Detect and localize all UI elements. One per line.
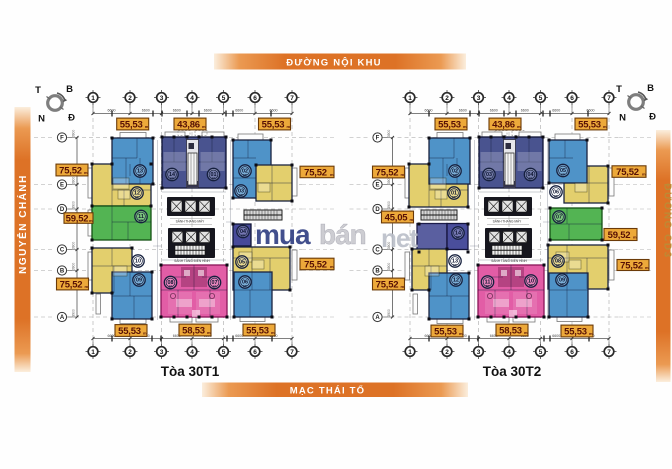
svg-text:59,52: 59,52: [66, 213, 89, 224]
svg-text:2: 2: [128, 95, 132, 102]
svg-text:SP: SP: [486, 284, 490, 288]
svg-text:bán: bán: [319, 219, 366, 250]
svg-text:NGUYỄN CHÁNH: NGUYỄN CHÁNH: [16, 174, 29, 274]
svg-text:SP: SP: [139, 219, 143, 223]
svg-text:3: 3: [477, 95, 481, 102]
svg-text:SẢNH TẦNG ĐIỂN HÌNH: SẢNH TẦNG ĐIỂN HÌNH: [491, 258, 527, 263]
svg-text:3900: 3900: [387, 263, 391, 271]
svg-text:75,52: 75,52: [59, 165, 82, 176]
svg-text:3: 3: [160, 95, 164, 102]
svg-text:E: E: [375, 183, 379, 189]
svg-text:m: m: [401, 284, 405, 289]
svg-text:m: m: [271, 330, 275, 335]
svg-text:1: 1: [91, 349, 95, 356]
svg-text:SẢNH TẦNG ĐIỂN HÌNH: SẢNH TẦNG ĐIỂN HÌNH: [174, 258, 210, 263]
svg-text:59,52: 59,52: [608, 230, 631, 241]
svg-text:SP: SP: [557, 219, 561, 223]
svg-text:3900: 3900: [72, 263, 76, 271]
svg-text:B: B: [60, 269, 65, 275]
svg-text:C: C: [60, 248, 65, 254]
svg-text:m: m: [89, 218, 93, 223]
svg-text:75,52: 75,52: [376, 167, 399, 178]
svg-text:ĐƯỜNG CD3: ĐƯỜNG CD3: [662, 183, 672, 258]
svg-text:m: m: [645, 265, 649, 270]
svg-text:Đ: Đ: [68, 113, 75, 124]
svg-text:3900: 3900: [387, 130, 391, 138]
svg-text:1: 1: [408, 95, 412, 102]
svg-text:m: m: [463, 124, 467, 129]
svg-text:E: E: [60, 183, 64, 189]
svg-text:2: 2: [128, 349, 132, 356]
svg-text:6600: 6600: [552, 109, 560, 113]
svg-text:SP: SP: [213, 285, 217, 289]
svg-text:75,52: 75,52: [304, 259, 327, 270]
svg-text:4: 4: [190, 95, 194, 102]
svg-text:mua: mua: [255, 219, 311, 250]
svg-text:SP: SP: [136, 263, 140, 267]
svg-text:75,52: 75,52: [60, 279, 83, 290]
svg-text:m: m: [642, 172, 646, 177]
svg-text:5: 5: [539, 349, 543, 356]
svg-text:43,86: 43,86: [492, 119, 515, 130]
svg-text:3900: 3900: [72, 242, 76, 250]
svg-text:m: m: [517, 124, 521, 129]
svg-text:75,52: 75,52: [620, 260, 643, 271]
svg-text:m: m: [202, 124, 206, 129]
svg-text:T: T: [616, 84, 622, 95]
svg-text:6: 6: [570, 95, 574, 102]
svg-text:4: 4: [190, 349, 194, 356]
svg-text:ĐƯỜNG NỘI KHU: ĐƯỜNG NỘI KHU: [286, 57, 381, 69]
svg-text:3: 3: [160, 349, 164, 356]
svg-text:5: 5: [222, 349, 226, 356]
svg-text:SP: SP: [243, 173, 247, 177]
svg-text:C: C: [375, 248, 380, 254]
svg-text:m: m: [84, 170, 88, 175]
svg-text:7: 7: [290, 349, 294, 356]
svg-text:6600: 6600: [490, 109, 498, 113]
svg-text:3: 3: [477, 349, 481, 356]
svg-text:6: 6: [253, 95, 257, 102]
svg-text:m: m: [145, 124, 149, 129]
svg-text:T: T: [35, 85, 41, 96]
svg-text:SP: SP: [453, 173, 457, 177]
svg-text:Tòa 30T1: Tòa 30T1: [161, 364, 220, 379]
svg-text:5: 5: [539, 95, 543, 102]
svg-text:m: m: [330, 264, 334, 269]
svg-text:SP: SP: [240, 264, 244, 268]
svg-text:SP: SP: [138, 173, 142, 177]
svg-text:1: 1: [408, 349, 412, 356]
svg-text:2: 2: [445, 95, 449, 102]
svg-text:net: net: [381, 223, 418, 253]
svg-text:m: m: [287, 124, 291, 129]
svg-text:MẠC THÁI TỔ: MẠC THÁI TỔ: [290, 385, 365, 397]
svg-text:SẢNH THANG MÁY: SẢNH THANG MÁY: [493, 219, 523, 224]
svg-text:4: 4: [507, 349, 511, 356]
svg-text:3900: 3900: [72, 177, 76, 185]
svg-text:1: 1: [91, 95, 95, 102]
svg-text:55,53: 55,53: [434, 326, 457, 337]
svg-text:SP: SP: [560, 282, 564, 286]
svg-text:m: m: [85, 284, 89, 289]
svg-text:75,52: 75,52: [616, 167, 639, 178]
svg-text:6600: 6600: [235, 109, 243, 113]
svg-text:m: m: [207, 330, 211, 335]
svg-text:SP: SP: [554, 194, 558, 198]
svg-text:7: 7: [290, 95, 294, 102]
svg-text:SP: SP: [169, 285, 173, 289]
svg-text:N: N: [619, 113, 626, 124]
svg-text:SP: SP: [561, 173, 565, 177]
svg-text:58,53: 58,53: [182, 325, 205, 336]
svg-text:6600: 6600: [235, 334, 243, 338]
svg-text:3900: 3900: [72, 130, 76, 138]
svg-text:SP: SP: [529, 283, 533, 287]
svg-text:75,52: 75,52: [304, 167, 327, 178]
svg-text:m: m: [330, 172, 334, 177]
svg-text:m: m: [524, 330, 528, 335]
svg-text:6600: 6600: [459, 109, 467, 113]
svg-text:SP: SP: [212, 177, 216, 181]
svg-text:m: m: [143, 331, 147, 336]
svg-text:m: m: [589, 331, 593, 336]
svg-text:2: 2: [445, 349, 449, 356]
svg-text:6600: 6600: [552, 334, 560, 338]
svg-text:58,53: 58,53: [499, 325, 522, 336]
svg-text:SP: SP: [241, 234, 245, 238]
svg-text:A: A: [60, 315, 65, 321]
svg-text:SP: SP: [556, 263, 560, 267]
svg-text:3900: 3900: [387, 309, 391, 317]
svg-text:Tòa 30T2: Tòa 30T2: [483, 364, 542, 379]
svg-text:m: m: [633, 235, 637, 240]
svg-text:SẢNH THANG MÁY: SẢNH THANG MÁY: [176, 219, 206, 224]
svg-text:55,53: 55,53: [120, 119, 143, 130]
svg-text:F: F: [376, 136, 380, 142]
svg-text:SP: SP: [456, 235, 460, 239]
svg-text:SP: SP: [487, 177, 491, 181]
svg-text:55,53: 55,53: [262, 119, 285, 130]
svg-text:75,52: 75,52: [376, 279, 399, 290]
svg-text:Đ: Đ: [649, 112, 656, 123]
svg-text:B: B: [647, 83, 654, 94]
svg-text:SP: SP: [239, 193, 243, 197]
svg-text:4: 4: [507, 95, 511, 102]
svg-text:5: 5: [222, 95, 226, 102]
svg-text:SP: SP: [135, 195, 139, 199]
svg-text:SP: SP: [170, 177, 174, 181]
svg-text:3900: 3900: [72, 201, 76, 209]
svg-text:7: 7: [607, 349, 611, 356]
svg-text:SP: SP: [137, 282, 141, 286]
svg-text:43,86: 43,86: [177, 119, 200, 130]
svg-text:m: m: [603, 124, 607, 129]
svg-text:SP: SP: [453, 263, 457, 267]
svg-text:6: 6: [253, 349, 257, 356]
svg-text:D: D: [375, 207, 380, 213]
svg-text:3900: 3900: [72, 309, 76, 317]
svg-text:SP: SP: [454, 282, 458, 286]
svg-text:55,53: 55,53: [564, 326, 587, 337]
svg-text:N: N: [38, 114, 45, 125]
svg-text:SP: SP: [452, 195, 456, 199]
svg-text:m: m: [410, 217, 414, 222]
svg-text:B: B: [375, 269, 380, 275]
svg-text:55,53: 55,53: [246, 325, 269, 336]
svg-text:55,53: 55,53: [118, 326, 141, 337]
svg-text:m: m: [401, 172, 405, 177]
svg-text:A: A: [375, 315, 380, 321]
svg-text:3900: 3900: [387, 201, 391, 209]
svg-text:SP: SP: [243, 284, 247, 288]
svg-text:7: 7: [607, 95, 611, 102]
svg-text:6600: 6600: [142, 109, 150, 113]
svg-text:6600: 6600: [204, 109, 212, 113]
svg-text:6600: 6600: [521, 109, 529, 113]
svg-text:55,53: 55,53: [438, 119, 461, 130]
svg-text:45,05: 45,05: [385, 212, 409, 223]
svg-text:6: 6: [570, 349, 574, 356]
svg-text:6600: 6600: [173, 109, 181, 113]
svg-text:SP: SP: [529, 177, 533, 181]
svg-text:55,53: 55,53: [578, 119, 601, 130]
svg-text:F: F: [60, 136, 64, 142]
svg-text:B: B: [66, 84, 73, 95]
svg-text:m: m: [459, 331, 463, 336]
